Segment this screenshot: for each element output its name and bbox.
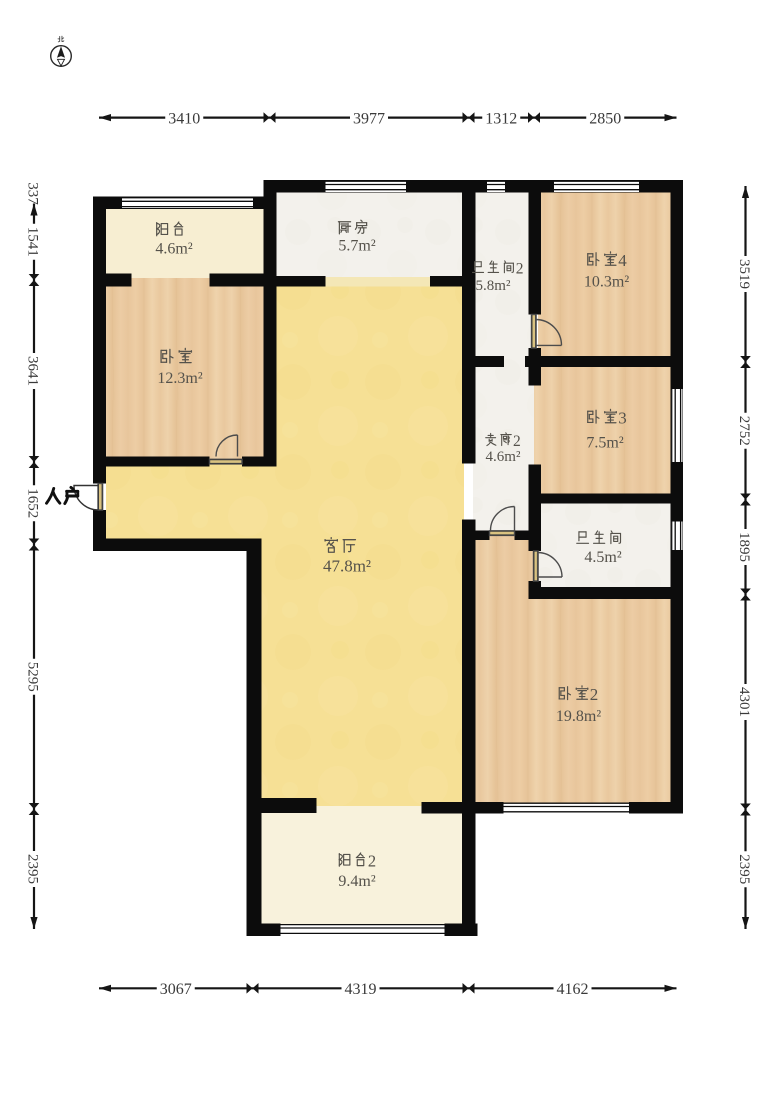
svg-text:5295: 5295 bbox=[25, 662, 41, 692]
svg-text:47.8m²: 47.8m² bbox=[323, 557, 371, 576]
svg-text:5.7m²: 5.7m² bbox=[338, 238, 375, 255]
svg-text:1652: 1652 bbox=[25, 488, 41, 518]
svg-text:3641: 3641 bbox=[25, 356, 41, 386]
svg-text:1895: 1895 bbox=[736, 532, 752, 562]
svg-text:3067: 3067 bbox=[160, 981, 192, 998]
svg-text:4319: 4319 bbox=[345, 981, 377, 998]
svg-text:4.6m²: 4.6m² bbox=[486, 449, 521, 465]
svg-text:2395: 2395 bbox=[736, 854, 752, 884]
svg-text:4: 4 bbox=[618, 251, 627, 270]
svg-text:2: 2 bbox=[368, 851, 376, 870]
svg-text:2: 2 bbox=[516, 260, 524, 277]
svg-text:9.4m²: 9.4m² bbox=[338, 873, 375, 890]
svg-text:1541: 1541 bbox=[25, 227, 41, 257]
svg-text:2395: 2395 bbox=[25, 854, 41, 884]
svg-text:4301: 4301 bbox=[736, 687, 752, 717]
svg-text:3410: 3410 bbox=[168, 110, 200, 127]
svg-text:7.5m²: 7.5m² bbox=[586, 435, 623, 452]
svg-text:4162: 4162 bbox=[557, 981, 589, 998]
svg-text:3519: 3519 bbox=[736, 259, 752, 289]
svg-text:2752: 2752 bbox=[736, 416, 752, 446]
svg-text:3: 3 bbox=[618, 409, 627, 428]
svg-text:3977: 3977 bbox=[353, 110, 385, 127]
svg-text:2850: 2850 bbox=[589, 110, 621, 127]
svg-text:337: 337 bbox=[25, 182, 41, 205]
svg-text:4.5m²: 4.5m² bbox=[584, 549, 621, 566]
svg-text:10.3m²: 10.3m² bbox=[584, 274, 629, 291]
svg-text:2: 2 bbox=[590, 685, 599, 704]
svg-text:12.3m²: 12.3m² bbox=[157, 370, 202, 387]
svg-text:1312: 1312 bbox=[485, 110, 517, 127]
svg-text:19.8m²: 19.8m² bbox=[556, 708, 601, 725]
svg-text:5.8m²: 5.8m² bbox=[476, 278, 511, 294]
svg-text:2: 2 bbox=[513, 433, 521, 450]
svg-text:4.6m²: 4.6m² bbox=[155, 241, 192, 258]
